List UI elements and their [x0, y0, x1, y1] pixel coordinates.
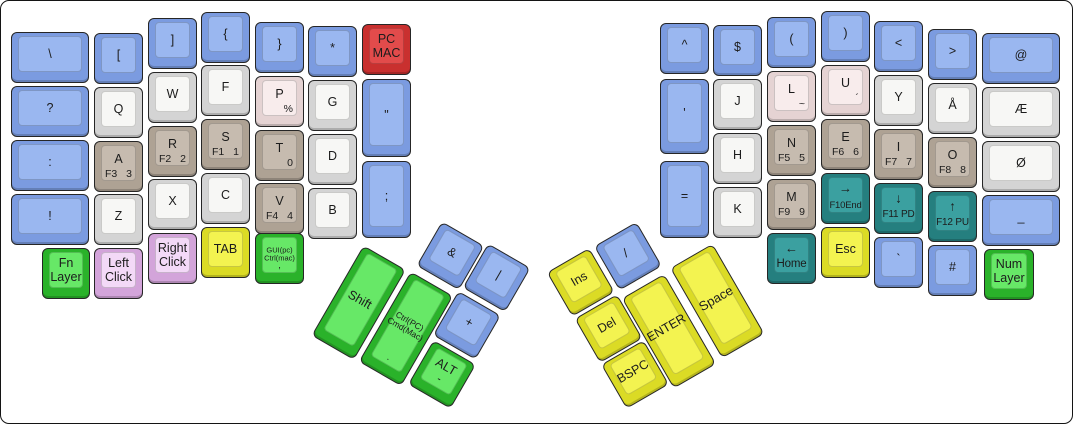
key-arrow-right[interactable]: →F10End [821, 173, 870, 224]
key-s-label: 1 [233, 147, 239, 158]
key-z-cap: Z [101, 198, 136, 234]
key-less-than[interactable]: < [874, 21, 923, 72]
key-arrow-right-label: F10End [829, 201, 862, 211]
key-colon-label: : [48, 156, 51, 169]
key-arrow-up-label: F12 PU [936, 218, 969, 228]
key-p-label: P [275, 88, 283, 101]
key-b[interactable]: B [308, 188, 357, 239]
key-i[interactable]: IF77 [874, 129, 923, 180]
key-b-cap: B [315, 192, 350, 228]
key-z[interactable]: Z [94, 194, 143, 245]
key-pc-mac-label: PCMAC [373, 32, 401, 60]
key-g-label: G [328, 96, 338, 109]
key-arrow-down-label: ↓ [895, 192, 902, 205]
key-underscore-label: _ [1018, 211, 1025, 224]
key-tab-cap: TAB [208, 231, 243, 267]
key-caret-cap: ^ [667, 27, 702, 63]
key-c[interactable]: C [201, 173, 250, 224]
key-exclaim-label: ! [48, 210, 51, 223]
key-k[interactable]: K [713, 187, 762, 238]
key-left-paren[interactable]: ( [767, 17, 816, 68]
key-gui-cap: GUI(pc)Ctrl(mac), [262, 237, 297, 273]
key-plus-label: + [462, 316, 475, 330]
key-right-click-label-line: Right [158, 241, 187, 255]
key-left-brace-label: { [223, 28, 227, 41]
key-v-cap: VF44 [262, 187, 297, 223]
key-a-label: F3 [105, 169, 117, 180]
key-aring-cap: Å [935, 87, 970, 123]
key-right-brace-cap: } [262, 26, 297, 62]
key-asterisk[interactable]: * [308, 26, 357, 77]
key-n-label: N [787, 137, 796, 150]
key-left-brace[interactable]: { [201, 12, 250, 63]
key-a-cap: AF33 [101, 145, 136, 181]
key-y-label: Y [894, 91, 902, 104]
key-b-label: B [328, 204, 336, 217]
key-arrow-up-label: ↑ [949, 200, 956, 213]
key-o-label: O [948, 149, 958, 162]
key-y[interactable]: Y [874, 75, 923, 126]
key-pipe-cap: | [475, 251, 523, 300]
key-m[interactable]: MF99 [767, 179, 816, 230]
key-num-layer-label: NumLayer [993, 257, 1024, 285]
key-right-bracket-label: ] [171, 34, 174, 47]
key-double-quote-label: " [384, 108, 388, 121]
key-w-cap: W [155, 76, 190, 112]
key-backslash-cap: \ [18, 36, 82, 72]
key-at-label: @ [1015, 49, 1028, 62]
key-esc-label: Esc [835, 243, 856, 256]
key-s-label: F1 [212, 147, 224, 158]
keyboard-layout-canvas: \?:![QAF33ZFnLayerLeftClick]WRF22XRightC… [0, 0, 1073, 424]
key-arrow-down-cap: ↓F11 PD [881, 187, 916, 223]
key-slash-cap: / [602, 229, 650, 278]
key-colon[interactable]: : [11, 140, 89, 191]
key-j-cap: J [720, 83, 755, 119]
key-i-label: F7 [885, 157, 897, 168]
key-exclaim[interactable]: ! [11, 194, 89, 245]
key-greater-than-cap: > [935, 33, 970, 69]
key-q-label: Q [114, 103, 124, 116]
key-question-label: ? [47, 102, 54, 115]
key-j-label: J [734, 95, 740, 108]
key-ins-label: Ins [569, 269, 590, 288]
key-exclaim-cap: ! [18, 198, 82, 234]
key-left-click-label-line: Left [105, 256, 132, 270]
key-p[interactable]: P% [255, 76, 304, 127]
key-s[interactable]: SF11 [201, 119, 250, 170]
key-pc-mac[interactable]: PCMAC [362, 24, 411, 75]
key-right-click[interactable]: RightClick [148, 233, 197, 284]
key-right-paren-label: ) [843, 27, 847, 40]
key-u[interactable]: U´ [821, 65, 870, 116]
key-caret[interactable]: ^ [660, 23, 709, 74]
key-arrow-down[interactable]: ↓F11 PD [874, 183, 923, 234]
key-tab[interactable]: TAB [201, 227, 250, 278]
key-underscore[interactable]: _ [982, 195, 1060, 246]
key-arrow-right-label: → [839, 182, 852, 195]
key-o[interactable]: OF88 [928, 137, 977, 188]
key-e-label: E [841, 131, 849, 144]
key-o-label: F8 [939, 165, 951, 176]
key-d-cap: D [315, 138, 350, 174]
key-k-label: K [733, 203, 741, 216]
key-n-label: 5 [799, 153, 805, 164]
key-r-label: R [168, 138, 177, 151]
key-equals-cap: = [667, 165, 702, 227]
key-right-bracket-cap: ] [155, 22, 190, 58]
key-left-bracket-label: [ [117, 49, 120, 62]
key-backslash-label: \ [48, 48, 51, 61]
key-o-label: 8 [960, 165, 966, 176]
key-z-label: Z [115, 210, 123, 223]
key-backtick-cap: ` [881, 241, 916, 277]
key-home-cap: ←Home [774, 237, 809, 273]
key-space-label: Space [697, 283, 735, 313]
key-u-cap: U´ [828, 69, 863, 105]
key-plus-cap: + [445, 298, 493, 347]
key-a-label: A [114, 153, 122, 166]
key-dollar-cap: $ [720, 29, 755, 65]
key-apostrophe[interactable]: ' [660, 79, 709, 154]
key-h-label: H [733, 149, 742, 162]
key-r-label: F2 [159, 154, 171, 165]
key-hash-label: # [949, 261, 956, 274]
key-d-label: D [328, 150, 337, 163]
key-asterisk-cap: * [315, 30, 350, 66]
key-hash[interactable]: # [928, 245, 977, 296]
key-fn-layer-label: FnLayer [50, 256, 81, 284]
key-i-label: 7 [906, 157, 912, 168]
key-question[interactable]: ? [11, 86, 89, 137]
key-e-label: F6 [832, 147, 844, 158]
key-ampersand-label: & [445, 245, 458, 260]
key-right-paren-cap: ) [828, 15, 863, 51]
key-right-brace[interactable]: } [255, 22, 304, 73]
key-h[interactable]: H [713, 133, 762, 184]
key-l-label: ~ [799, 99, 805, 110]
key-pipe-label: | [494, 269, 503, 281]
key-num-layer-label-line: Num [993, 257, 1024, 271]
key-x-cap: X [155, 183, 190, 219]
key-w[interactable]: W [148, 72, 197, 123]
key-m-label: F9 [778, 207, 790, 218]
key-pc-mac-label-line: MAC [373, 46, 401, 60]
key-g-cap: G [315, 84, 350, 120]
key-caret-label: ^ [682, 39, 688, 52]
key-home[interactable]: ←Home [767, 233, 816, 284]
key-fn-layer-cap: FnLayer [49, 252, 83, 288]
key-arrow-down-label: F11 PD [882, 210, 915, 220]
key-slash-label: / [621, 247, 630, 260]
key-double-quote[interactable]: " [362, 79, 411, 157]
key-p-cap: P% [262, 80, 297, 116]
key-backtick-label: ` [896, 253, 900, 266]
key-equals[interactable]: = [660, 161, 709, 238]
key-e-label: 6 [853, 147, 859, 158]
key-shift-label: Shift [346, 288, 374, 311]
key-home-label: Home [775, 259, 808, 271]
key-v-label: 4 [287, 211, 293, 222]
key-m-label: M [786, 191, 796, 204]
key-d[interactable]: D [308, 134, 357, 185]
key-left-click-cap: LeftClick [101, 252, 136, 288]
key-e[interactable]: EF66 [821, 119, 870, 170]
key-t-cap: T0 [262, 134, 297, 170]
key-oslash-cap: Ø [989, 145, 1053, 181]
key-greater-than[interactable]: > [928, 29, 977, 80]
key-r-label: 2 [180, 154, 186, 165]
key-pc-mac-cap: PCMAC [369, 28, 404, 64]
key-arrow-up-cap: ↑F12 PU [935, 195, 970, 231]
key-i-label: I [897, 141, 900, 154]
key-o-cap: OF88 [935, 141, 970, 177]
key-semicolon[interactable]: ; [362, 161, 411, 238]
key-left-brace-cap: { [208, 16, 243, 52]
key-r-cap: RF22 [155, 130, 190, 166]
key-equals-label: = [681, 190, 688, 203]
key-x-label: X [168, 195, 176, 208]
key-q-cap: Q [101, 91, 136, 127]
key-t-label: 0 [287, 158, 293, 169]
key-g[interactable]: G [308, 80, 357, 131]
key-bspc-label: BSPC [615, 358, 651, 386]
key-v-label: V [275, 195, 283, 208]
key-s-label: S [221, 131, 229, 144]
key-less-than-label: < [895, 37, 902, 50]
key-enter-label: ENTER [645, 312, 688, 344]
key-left-click-label: LeftClick [105, 256, 132, 284]
key-right-bracket[interactable]: ] [148, 18, 197, 69]
key-left-bracket[interactable]: [ [94, 33, 143, 84]
key-c-label: C [221, 189, 230, 202]
key-arrow-up[interactable]: ↑F12 PU [928, 191, 977, 242]
key-v[interactable]: VF44 [255, 183, 304, 234]
key-gui-label: , [263, 261, 296, 271]
key-x[interactable]: X [148, 179, 197, 230]
key-colon-cap: : [18, 144, 82, 180]
key-c-cap: C [208, 177, 243, 213]
key-t[interactable]: T0 [255, 130, 304, 181]
key-gui[interactable]: GUI(pc)Ctrl(mac), [255, 233, 304, 284]
key-f-cap: F [208, 69, 243, 105]
key-esc-cap: Esc [828, 231, 863, 267]
key-tab-label: TAB [214, 243, 237, 256]
key-w-label: W [167, 88, 179, 101]
key-fn-layer-label-line: Layer [50, 270, 81, 284]
key-a-label: 3 [126, 169, 132, 180]
key-dollar[interactable]: $ [713, 25, 762, 76]
key-v-label: F4 [266, 211, 278, 222]
key-right-brace-label: } [277, 38, 281, 51]
key-less-than-cap: < [881, 25, 916, 61]
key-backslash[interactable]: \ [11, 32, 89, 83]
key-semicolon-label: ; [385, 190, 388, 203]
key-h-cap: H [720, 137, 755, 173]
key-l-cap: L~ [774, 75, 809, 111]
key-m-cap: MF99 [774, 183, 809, 219]
key-n[interactable]: NF55 [767, 125, 816, 176]
key-k-cap: K [720, 191, 755, 227]
key-p-label: % [284, 104, 293, 115]
key-t-label: T [276, 142, 284, 155]
key-l-label: L [788, 83, 795, 96]
key-home-label: ← [785, 242, 798, 255]
key-aring[interactable]: Å [928, 83, 977, 134]
key-del-label: Del [596, 316, 619, 336]
key-ae-cap: Æ [989, 91, 1053, 127]
key-i-cap: IF77 [881, 133, 916, 169]
key-semicolon-cap: ; [369, 165, 404, 227]
key-dollar-label: $ [734, 41, 741, 54]
split-keyboard-layout: \?:![QAF33ZFnLayerLeftClick]WRF22XRightC… [1, 1, 1072, 423]
key-left-paren-cap: ( [774, 21, 809, 57]
key-j[interactable]: J [713, 79, 762, 130]
key-u-label: U [841, 77, 850, 90]
key-y-cap: Y [881, 79, 916, 115]
key-e-cap: EF66 [828, 123, 863, 159]
key-at[interactable]: @ [982, 33, 1060, 84]
key-hash-cap: # [935, 249, 970, 285]
key-at-cap: @ [989, 37, 1053, 73]
key-ae-label: Æ [1015, 103, 1028, 116]
key-bspc-cap: BSPC [609, 347, 657, 396]
key-u-label: ´ [856, 93, 860, 104]
key-r[interactable]: RF22 [148, 126, 197, 177]
key-apostrophe-label: ' [683, 107, 685, 120]
key-f[interactable]: F [201, 65, 250, 116]
key-ampersand-cap: & [428, 229, 476, 278]
key-a[interactable]: AF33 [94, 141, 143, 192]
key-ctrl-cmd-label: . [372, 345, 405, 370]
key-m-label: 9 [799, 207, 805, 218]
key-pc-mac-label-line: PC [373, 32, 401, 46]
key-ae[interactable]: Æ [982, 87, 1060, 138]
key-alt-cap: ALT- [420, 347, 468, 396]
key-question-cap: ? [18, 90, 82, 126]
key-underscore-cap: _ [989, 199, 1053, 235]
key-del-cap: Del [583, 301, 631, 350]
key-arrow-right-cap: →F10End [828, 177, 863, 213]
key-backtick[interactable]: ` [874, 237, 923, 288]
key-n-cap: NF55 [774, 129, 809, 165]
key-greater-than-label: > [949, 45, 956, 58]
key-right-click-label: RightClick [158, 241, 187, 269]
key-f-label: F [222, 81, 230, 94]
key-num-layer-cap: NumLayer [991, 253, 1027, 289]
key-right-paren[interactable]: ) [821, 11, 870, 62]
key-left-bracket-cap: [ [101, 37, 136, 73]
key-left-click[interactable]: LeftClick [94, 248, 143, 299]
key-oslash-label: Ø [1016, 157, 1026, 170]
key-asterisk-label: * [330, 42, 335, 55]
key-s-cap: SF11 [208, 123, 243, 159]
key-double-quote-cap: " [369, 83, 404, 146]
key-ins-cap: Ins [555, 254, 603, 303]
key-q[interactable]: Q [94, 87, 143, 138]
key-num-layer-label-line: Layer [993, 271, 1024, 285]
key-left-click-label-line: Click [105, 270, 132, 284]
key-fn-layer-label-line: Fn [50, 256, 81, 270]
key-left-paren-label: ( [789, 33, 793, 46]
key-n-label: F5 [778, 153, 790, 164]
key-right-click-cap: RightClick [155, 237, 190, 273]
key-num-layer[interactable]: NumLayer [984, 249, 1034, 300]
key-fn-layer[interactable]: FnLayer [42, 248, 90, 299]
key-apostrophe-cap: ' [667, 83, 702, 143]
key-l[interactable]: L~ [767, 71, 816, 122]
key-ctrl-cmd-label: Ctrl(PC)Cmd(Mac) [385, 307, 429, 343]
key-oslash[interactable]: Ø [982, 141, 1060, 192]
key-aring-label: Å [948, 99, 956, 112]
key-esc[interactable]: Esc [821, 227, 870, 278]
key-right-click-label-line: Click [158, 255, 187, 269]
